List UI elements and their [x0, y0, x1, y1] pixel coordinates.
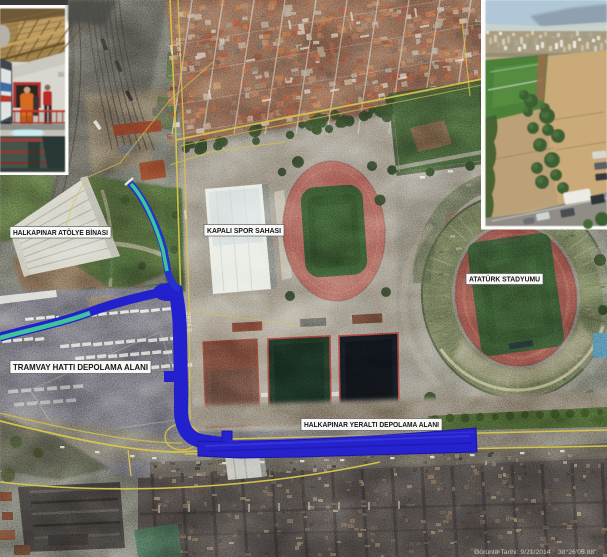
svg-text:ATATÜRK STADYUMU: ATATÜRK STADYUMU [469, 275, 540, 284]
svg-text:HALKAPINAR ATÖLYE BİNASI: HALKAPINAR ATÖLYE BİNASI [13, 228, 108, 237]
svg-text:Görüntü Tarihi: 9/21/2014: Görüntü Tarihi: 9/21/2014 [474, 549, 551, 556]
svg-text:HALKAPINAR YERALTI DEPOLAMA AL: HALKAPINAR YERALTI DEPOLAMA ALANI [304, 420, 439, 429]
svg-text:TRAMVAY HATTI DEPOLAMA ALANI: TRAMVAY HATTI DEPOLAMA ALANI [13, 363, 148, 372]
svg-text:38°26'05.88": 38°26'05.88" [558, 548, 597, 556]
svg-text:KAPALI SPOR SAHASI: KAPALI SPOR SAHASI [207, 226, 281, 235]
